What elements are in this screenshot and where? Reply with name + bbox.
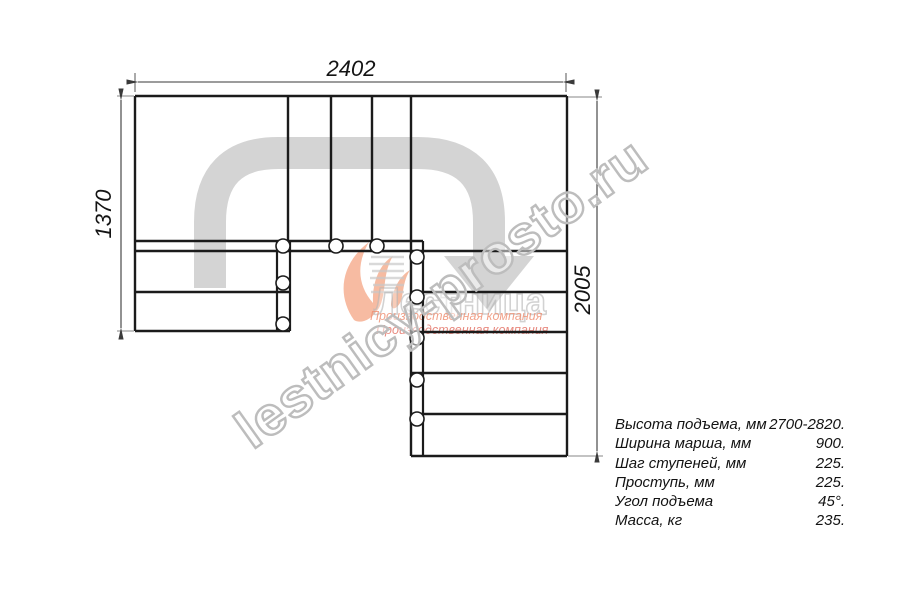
spec-label: Угол подъема <box>615 492 713 511</box>
baluster <box>329 239 343 253</box>
spec-row-flight-width: Ширина марша, мм 900. <box>615 434 845 453</box>
baluster <box>276 239 290 253</box>
spec-label: Масса, кг <box>615 511 682 530</box>
spec-label: Шаг ступеней, мм <box>615 454 746 473</box>
spec-value: 225. <box>816 454 845 473</box>
spec-label: Высота подъема, мм <box>615 415 767 434</box>
spec-value: 2700-2820. <box>769 415 845 434</box>
spec-value: 235. <box>816 511 845 530</box>
spec-row-mass: Масса, кг 235. <box>615 511 845 530</box>
dim-value-left: 1370 <box>91 189 116 239</box>
spec-row-height: Высота подъема, мм 2700-2820. <box>615 415 845 434</box>
spec-value: 225. <box>816 473 845 492</box>
specs-table: Высота подъема, мм 2700-2820. Ширина мар… <box>615 415 845 531</box>
spec-row-step-pitch: Шаг ступеней, мм 225. <box>615 454 845 473</box>
spec-label: Проступь, мм <box>615 473 715 492</box>
dim-value-right: 2005 <box>570 265 595 316</box>
spec-label: Ширина марша, мм <box>615 434 751 453</box>
spec-value: 45°. <box>818 492 845 511</box>
baluster <box>410 250 424 264</box>
spec-row-tread: Проступь, мм 225. <box>615 473 845 492</box>
baluster <box>410 373 424 387</box>
baluster <box>276 317 290 331</box>
baluster <box>410 412 424 426</box>
baluster <box>370 239 384 253</box>
spec-row-angle: Угол подъема 45°. <box>615 492 845 511</box>
spec-value: 900. <box>816 434 845 453</box>
dim-value-top: 2402 <box>326 56 376 81</box>
baluster <box>276 276 290 290</box>
